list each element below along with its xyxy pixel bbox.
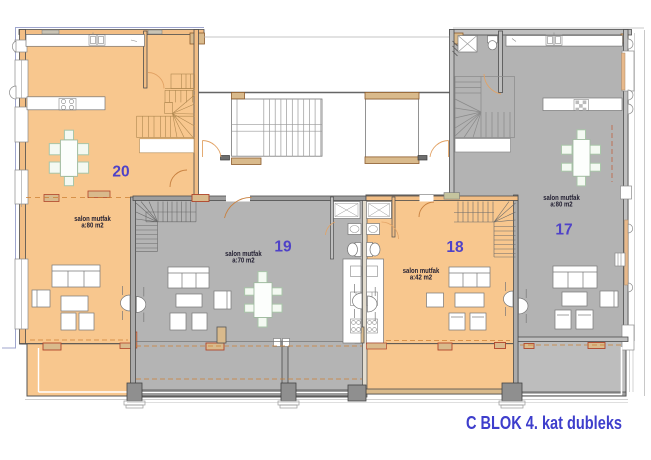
svg-text:18: 18: [446, 239, 464, 256]
svg-text:a:80 m2: a:80 m2: [550, 200, 572, 209]
svg-text:a:80 m2: a:80 m2: [81, 221, 103, 230]
svg-text:a:70 m2: a:70 m2: [232, 256, 254, 265]
svg-text:19: 19: [274, 239, 292, 256]
svg-text:a:42 m2: a:42 m2: [410, 273, 432, 282]
svg-text:C BLOK 4. kat dubleks: C BLOK 4. kat dubleks: [466, 413, 622, 433]
svg-text:17: 17: [555, 222, 572, 239]
svg-text:20: 20: [112, 164, 129, 181]
